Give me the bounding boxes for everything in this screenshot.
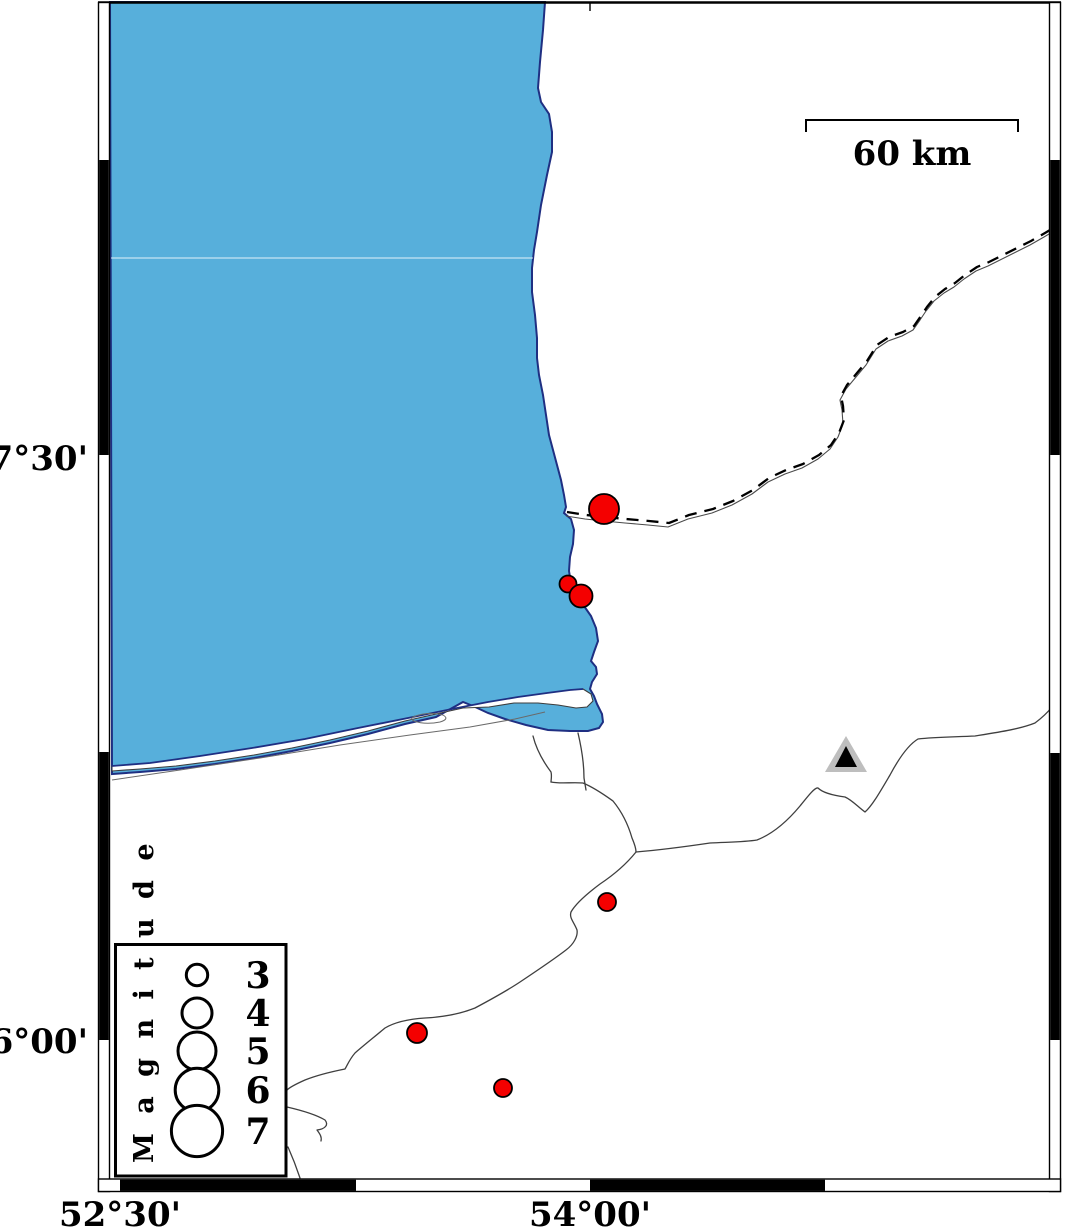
seismicity-map: 60 km 37°30' 36°00' 52°30' 54°00' M a g … xyxy=(0,0,1066,1229)
river-legend-corner xyxy=(288,1147,300,1178)
international-border xyxy=(566,227,1055,527)
river-hook xyxy=(287,1107,327,1141)
river-bay-west xyxy=(533,736,551,782)
frame-bottom-black-1 xyxy=(120,1180,356,1191)
border-river-line xyxy=(566,231,1054,527)
legend-circle-m7 xyxy=(171,1105,222,1156)
legend-label-m4: 4 xyxy=(245,993,270,1035)
lat-label-37-30: 37°30' xyxy=(0,439,88,479)
scale-bar-label: 60 km xyxy=(853,134,972,174)
frame-left-black-2 xyxy=(99,752,109,1040)
river-gorgan-upper xyxy=(551,782,636,852)
legend-label-m5: 5 xyxy=(245,1031,270,1073)
river-gorgan-east xyxy=(636,707,1052,852)
earthquake-marker-1 xyxy=(589,494,619,524)
earthquake-marker-5 xyxy=(407,1023,427,1043)
legend-label-m3: 3 xyxy=(245,955,270,997)
earthquake-marker-4 xyxy=(598,893,616,911)
legend-label-m6: 6 xyxy=(245,1070,270,1112)
scale-bar: 60 km xyxy=(806,120,1018,174)
earthquake-marker-6 xyxy=(494,1079,512,1097)
border-dashed-line xyxy=(567,227,1055,523)
scale-bar-line xyxy=(806,120,1018,132)
frame-right-black-2 xyxy=(1050,753,1060,1040)
legend-circle-m5 xyxy=(178,1032,216,1070)
frame-left-black-1 xyxy=(99,160,109,455)
legend-labels: 34567 xyxy=(245,955,270,1153)
station-marker xyxy=(825,736,867,772)
lon-label-54-00: 54°00' xyxy=(529,1195,651,1229)
frame-right-black-1 xyxy=(1050,160,1060,455)
magnitude-legend: M a g n i t u d e 34567 xyxy=(116,838,287,1176)
legend-circle-m3 xyxy=(186,964,207,985)
river-southwest-branch xyxy=(287,852,636,1090)
rivers xyxy=(287,707,1052,1178)
river-bay-east xyxy=(578,733,586,790)
lat-label-36-00: 36°00' xyxy=(0,1022,88,1062)
caspian-sea-polygon xyxy=(110,2,603,774)
lon-label-52-30: 52°30' xyxy=(59,1195,181,1229)
frame-bottom-black-2 xyxy=(590,1180,825,1191)
legend-circle-m4 xyxy=(182,998,212,1028)
earthquake-marker-3 xyxy=(570,585,593,608)
map-canvas xyxy=(110,2,603,780)
legend-title: M a g n i t u d e xyxy=(129,838,160,1163)
legend-label-m7: 7 xyxy=(245,1111,270,1153)
